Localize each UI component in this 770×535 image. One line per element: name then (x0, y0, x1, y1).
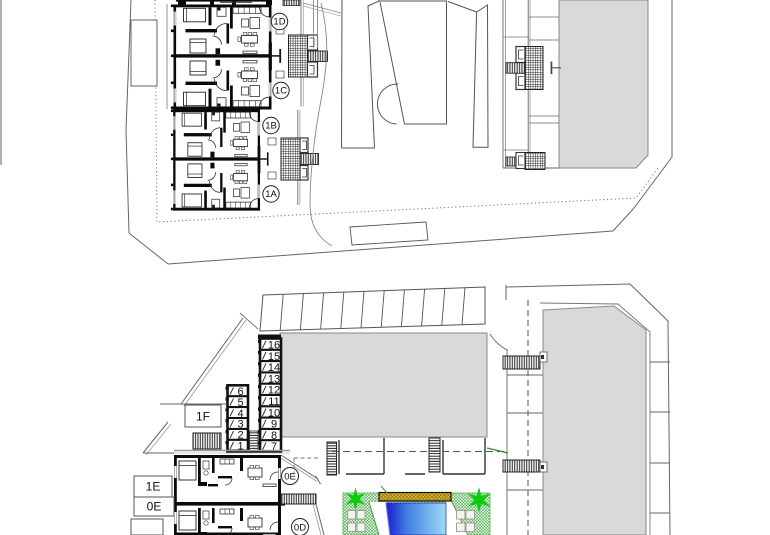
svg-text:0D: 0D (294, 522, 306, 533)
svg-text:1E: 1E (146, 480, 161, 494)
svg-text:1C: 1C (275, 86, 287, 97)
svg-text:1A: 1A (265, 189, 277, 200)
svg-text:7: 7 (271, 441, 277, 453)
svg-text:1F: 1F (196, 410, 210, 424)
svg-text:1D: 1D (273, 17, 285, 28)
svg-text:1B: 1B (265, 121, 277, 132)
svg-text:0E: 0E (147, 500, 162, 514)
